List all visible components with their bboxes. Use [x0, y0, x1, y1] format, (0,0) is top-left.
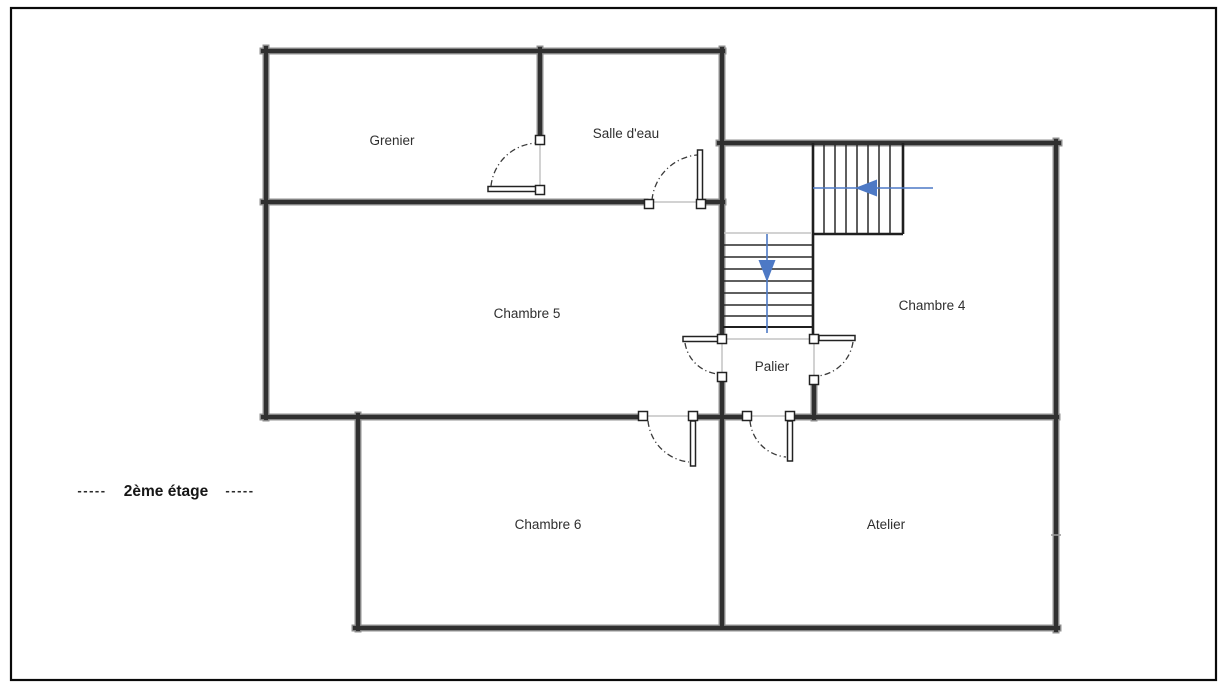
floor-title-left-dashes: -----: [77, 483, 106, 498]
door-post: [718, 335, 727, 344]
atelier-door-arc: [750, 421, 786, 457]
page-border: [11, 8, 1216, 680]
door-post: [645, 200, 654, 209]
door-post: [639, 412, 648, 421]
palier-chambre4-door-arc: [818, 342, 853, 376]
palier-chambre4-door-leaf: [819, 336, 855, 341]
chambre5-palier-door-arc: [685, 343, 718, 374]
floor-plan-canvas: Grenier Salle d'eau Chambre 5 Chambre 4 …: [0, 0, 1227, 688]
door-post: [718, 373, 727, 382]
door-posts: [536, 136, 819, 421]
room-label-palier: Palier: [755, 359, 790, 374]
door-post: [743, 412, 752, 421]
room-label-chambre-4: Chambre 4: [899, 298, 966, 313]
room-label-atelier: Atelier: [867, 517, 906, 532]
stair-arrow-left-icon: [855, 180, 877, 197]
room-label-salle-deau: Salle d'eau: [593, 126, 659, 141]
salle-deau-door-arc: [652, 155, 697, 200]
door-post: [810, 376, 819, 385]
chambre6-door-arc: [648, 421, 689, 462]
door-post: [536, 136, 545, 145]
grenier-door-arc: [491, 143, 538, 186]
room-label-chambre-5: Chambre 5: [494, 306, 561, 321]
floor-plan-page: Grenier Salle d'eau Chambre 5 Chambre 4 …: [0, 0, 1227, 688]
floor-title: ----- 2ème étage -----: [77, 483, 254, 500]
grenier-door-leaf: [488, 187, 536, 192]
chambre6-door-leaf: [691, 421, 696, 466]
door-opening-lines: [540, 144, 814, 416]
stair-arrow-down-icon: [759, 260, 776, 282]
door-post: [536, 186, 545, 195]
floor-title-text: 2ème étage: [124, 483, 209, 500]
door-post: [786, 412, 795, 421]
door-post: [810, 335, 819, 344]
salle-deau-door-leaf: [698, 150, 703, 200]
room-label-chambre-6: Chambre 6: [515, 517, 582, 532]
chambre5-palier-door-leaf: [683, 337, 718, 342]
stair-treads-upper-run: [824, 145, 890, 233]
floor-title-right-dashes: -----: [225, 483, 254, 498]
room-label-grenier: Grenier: [369, 133, 415, 148]
door-post: [689, 412, 698, 421]
door-post: [697, 200, 706, 209]
stair-treads-lower-run: [724, 245, 812, 316]
atelier-door-leaf: [788, 421, 793, 461]
